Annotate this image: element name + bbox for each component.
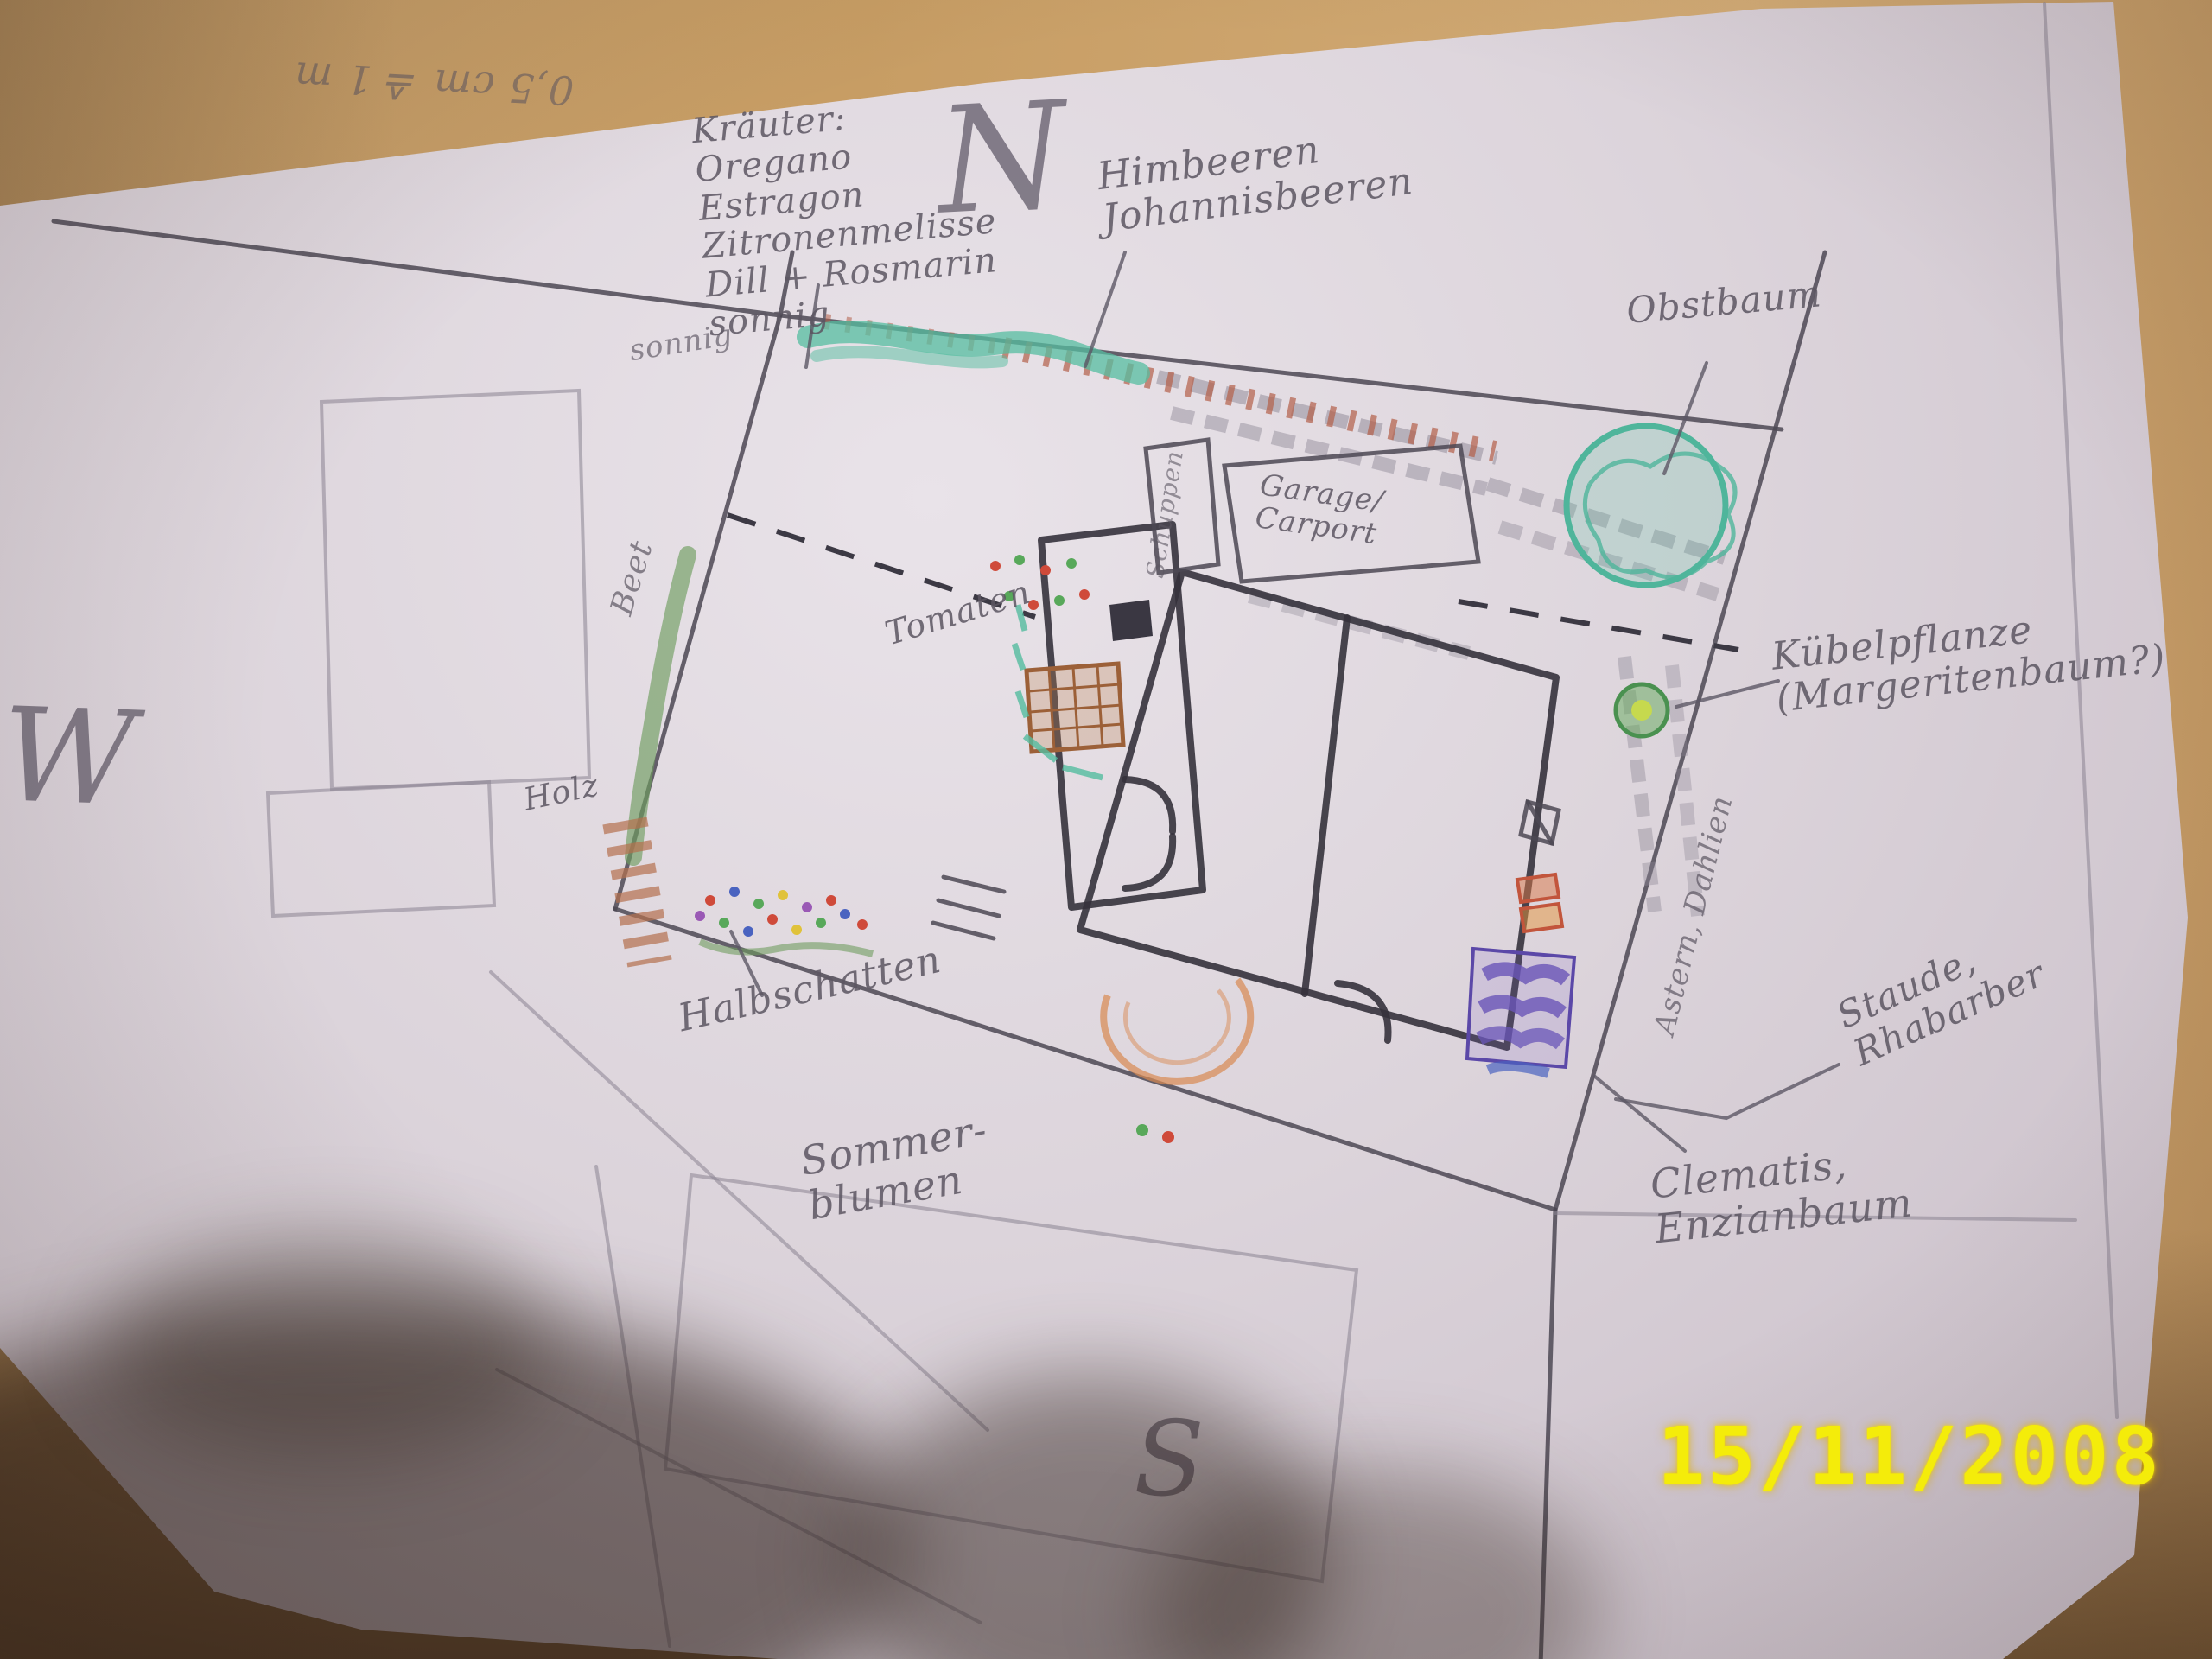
stove-square bbox=[1109, 600, 1153, 641]
compass-west: W bbox=[0, 680, 137, 835]
compass-south: S bbox=[1134, 1400, 1205, 1520]
stairs bbox=[933, 877, 1004, 938]
sand-circle bbox=[1103, 980, 1250, 1082]
flower-boxes bbox=[1517, 874, 1562, 931]
photo-of-garden-plan: 0,5 cm ≙ 1 m Kräuter: Oregano Estragon Z… bbox=[0, 0, 2212, 1659]
trellis bbox=[1014, 605, 1123, 778]
clematis-patch bbox=[1467, 949, 1574, 1073]
tub-plant bbox=[1616, 684, 1668, 736]
compass-north: N bbox=[933, 70, 1071, 248]
date-stamp: 15/11/2008 bbox=[1657, 1410, 2162, 1503]
fruit-tree bbox=[1567, 426, 1735, 585]
